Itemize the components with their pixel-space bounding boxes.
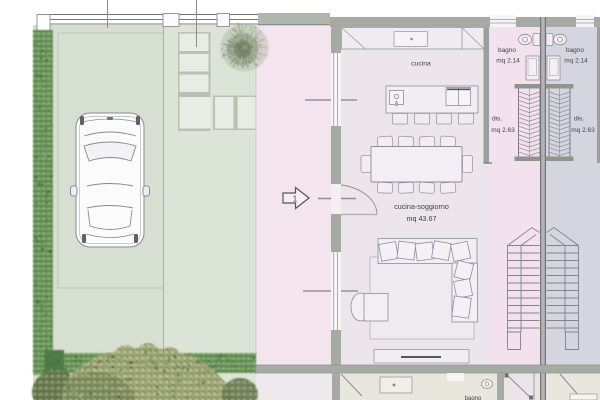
- svg-text:mq 43.67: mq 43.67: [407, 214, 437, 223]
- svg-text:dis.: dis.: [574, 116, 584, 123]
- svg-text:1: 1: [293, 195, 298, 204]
- svg-text:mq 2.14: mq 2.14: [564, 58, 588, 65]
- svg-text:bagno: bagno: [465, 396, 482, 400]
- svg-text:mq 2.63: mq 2.63: [491, 127, 515, 134]
- svg-text:mq 2.63: mq 2.63: [571, 127, 595, 134]
- svg-text:bagno: bagno: [566, 47, 584, 54]
- svg-text:mq 2.14: mq 2.14: [496, 58, 520, 65]
- svg-text:dis.: dis.: [492, 116, 502, 123]
- svg-text:cucina-soggiorno: cucina-soggiorno: [394, 202, 449, 211]
- svg-text:bagno: bagno: [498, 47, 516, 54]
- svg-text:cucina: cucina: [411, 61, 431, 68]
